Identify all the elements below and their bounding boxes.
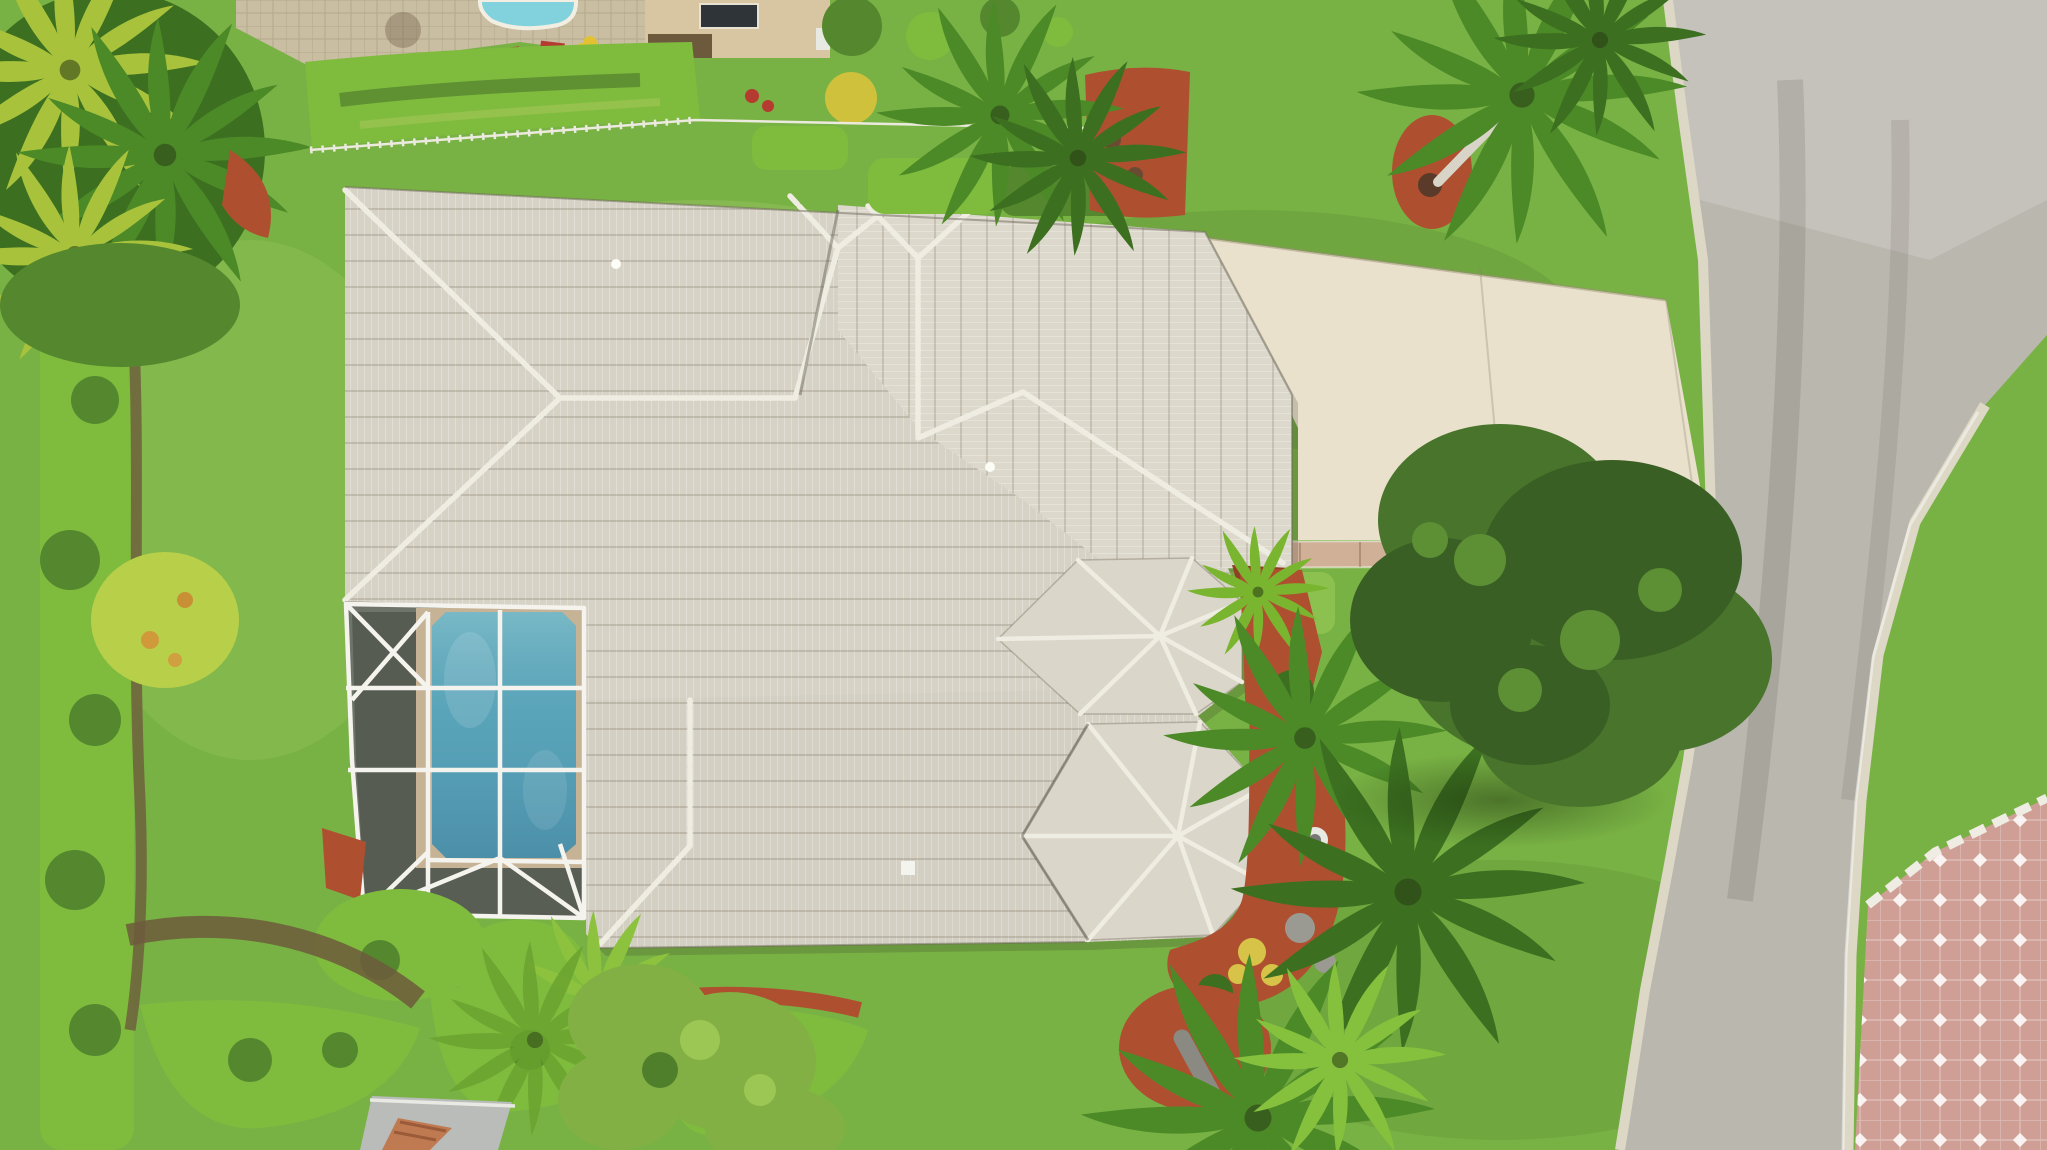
neighbor-pool [480, 0, 576, 28]
roof-vent [985, 462, 995, 472]
chartreuse-bush [91, 552, 239, 688]
yellow-bush [825, 72, 877, 124]
neighbor-structure-bottom-left [360, 1096, 515, 1150]
aerial-photo [0, 0, 2047, 1150]
patio-stain [385, 12, 421, 48]
neighbor-window [700, 4, 758, 28]
pool-enclosure [346, 604, 584, 918]
roof-vent [611, 259, 621, 269]
boulder [1285, 913, 1315, 943]
roof-vent [901, 861, 915, 875]
